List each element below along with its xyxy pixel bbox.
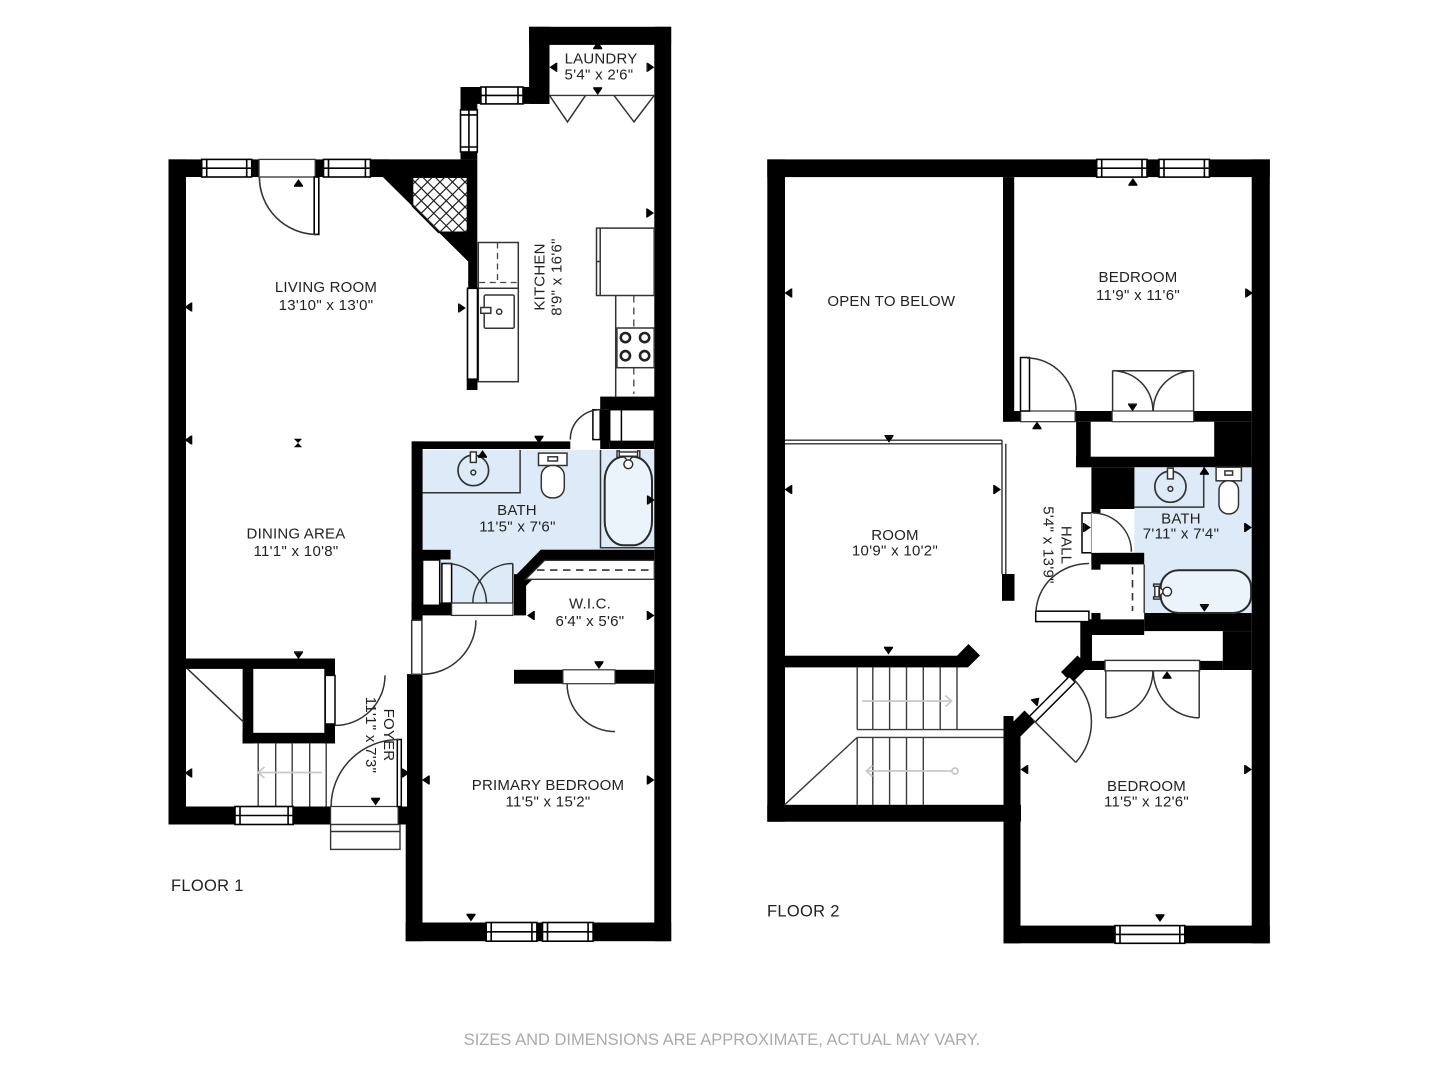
svg-text:8'9" x 16'6": 8'9" x 16'6" — [549, 238, 566, 316]
svg-text:6'4" x 5'6": 6'4" x 5'6" — [556, 613, 625, 630]
svg-text:11'1" x 7'3": 11'1" x 7'3" — [362, 697, 379, 773]
svg-text:7'11" x 7'4": 7'11" x 7'4" — [1143, 526, 1219, 543]
svg-text:W.I.C.: W.I.C. — [569, 596, 611, 613]
svg-text:PRIMARY BEDROOM: PRIMARY BEDROOM — [472, 777, 624, 794]
svg-text:FLOOR 2: FLOOR 2 — [767, 903, 840, 921]
svg-text:LIVING ROOM: LIVING ROOM — [275, 279, 377, 296]
svg-text:11'9" x 11'6": 11'9" x 11'6" — [1096, 287, 1180, 304]
svg-text:11'5" x 15'2": 11'5" x 15'2" — [505, 794, 590, 811]
svg-text:LAUNDRY: LAUNDRY — [565, 51, 638, 68]
svg-text:5'4" x 13'9": 5'4" x 13'9" — [1039, 506, 1056, 584]
svg-text:11'5" x 12'6": 11'5" x 12'6" — [1104, 794, 1189, 811]
svg-text:FOYER: FOYER — [380, 709, 397, 762]
svg-text:BEDROOM: BEDROOM — [1107, 778, 1186, 795]
svg-text:11'5" x 7'6": 11'5" x 7'6" — [479, 519, 555, 536]
svg-text:KITCHEN: KITCHEN — [532, 243, 549, 310]
svg-text:13'10" x 13'0": 13'10" x 13'0" — [279, 297, 374, 314]
svg-text:OPEN TO BELOW: OPEN TO BELOW — [827, 293, 956, 310]
svg-text:ROOM: ROOM — [871, 527, 918, 544]
svg-text:10'9" x 10'2": 10'9" x 10'2" — [852, 543, 938, 560]
svg-text:11'1" x 10'8": 11'1" x 10'8" — [253, 543, 338, 560]
svg-text:BATH: BATH — [497, 502, 537, 519]
svg-text:FLOOR 1: FLOOR 1 — [171, 877, 244, 895]
svg-text:SIZES AND DIMENSIONS ARE APPRO: SIZES AND DIMENSIONS ARE APPROXIMATE, AC… — [464, 1031, 981, 1049]
svg-text:BEDROOM: BEDROOM — [1099, 269, 1178, 286]
svg-text:DINING AREA: DINING AREA — [247, 526, 346, 543]
svg-text:5'4" x 2'6": 5'4" x 2'6" — [565, 67, 634, 84]
svg-text:HALL: HALL — [1057, 526, 1074, 564]
